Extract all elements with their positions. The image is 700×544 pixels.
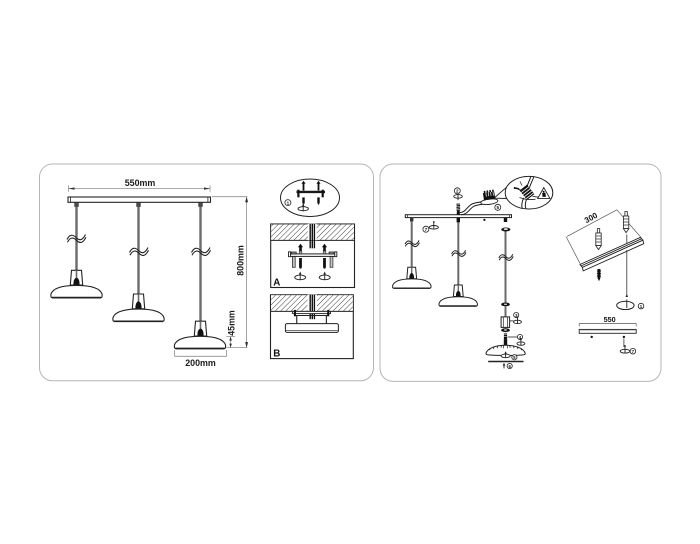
svg-text:7: 7 [425, 227, 428, 232]
svg-text:A: A [273, 278, 280, 289]
svg-text:2: 2 [456, 189, 459, 194]
svg-text:550mm: 550mm [125, 178, 156, 188]
svg-text:5: 5 [497, 205, 500, 210]
svg-text:550: 550 [604, 315, 616, 324]
svg-text:1: 1 [287, 200, 290, 205]
svg-text:200mm: 200mm [185, 358, 216, 368]
svg-text:45mm: 45mm [227, 310, 237, 336]
svg-text:800mm: 800mm [236, 245, 246, 276]
svg-text:B: B [273, 348, 280, 359]
